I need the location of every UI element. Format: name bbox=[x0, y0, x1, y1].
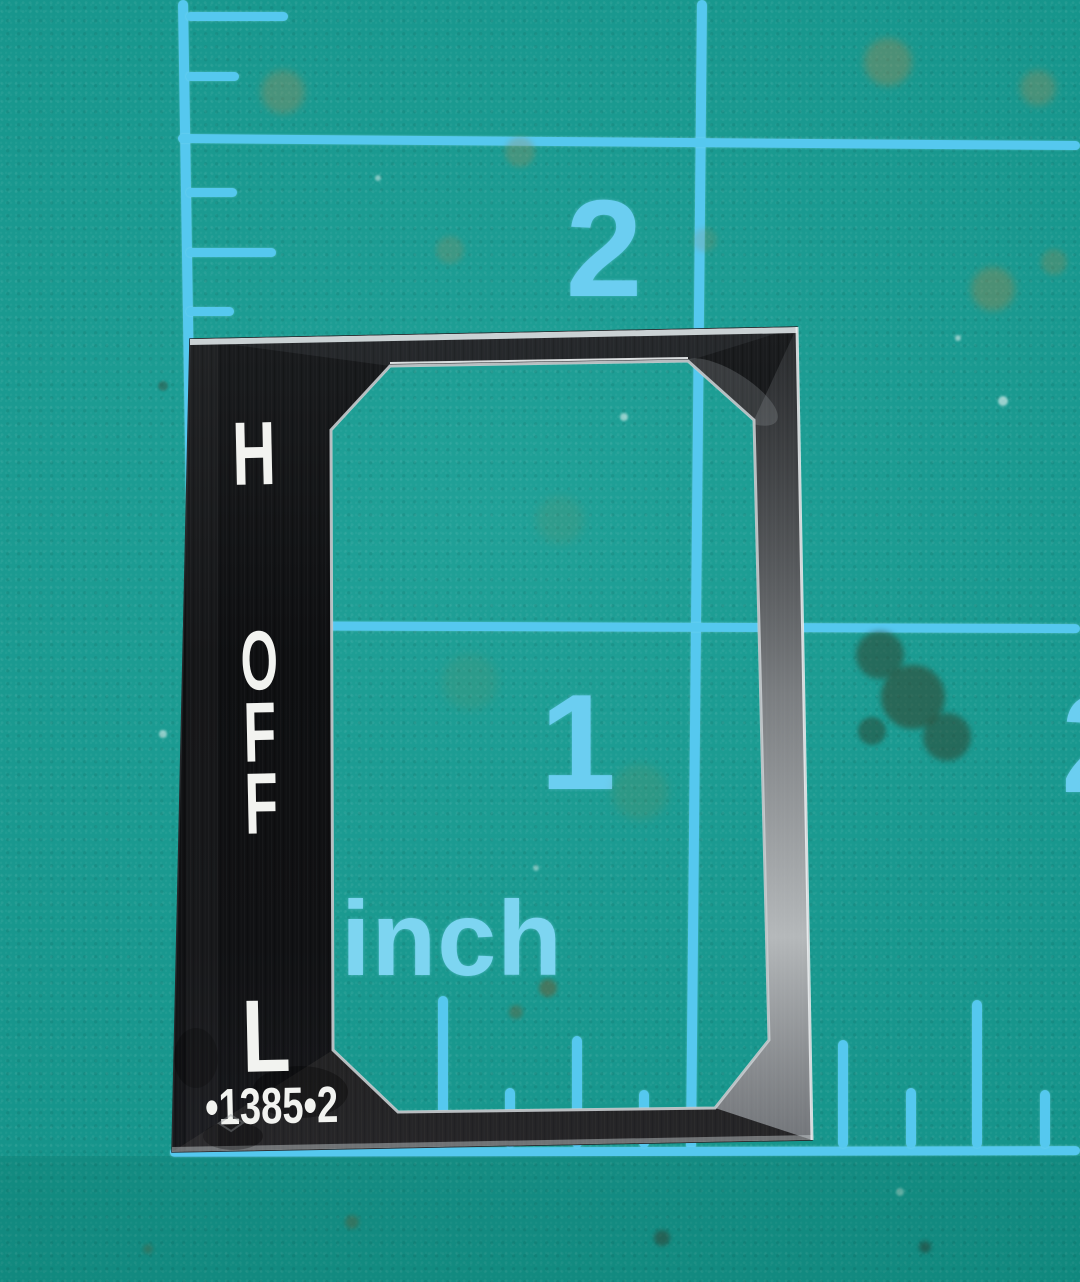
plate-right-sheen bbox=[715, 327, 812, 1140]
switch-plate: H O F F L •1385•2 bbox=[0, 0, 1080, 1282]
photo-scene: 212 inch bbox=[0, 0, 1080, 1282]
plate-window-rim bbox=[331, 361, 769, 1112]
plate-label-off-f2: F bbox=[244, 755, 279, 853]
plate-left-sheen bbox=[186, 340, 218, 1150]
plate-label-high: H bbox=[231, 404, 277, 505]
